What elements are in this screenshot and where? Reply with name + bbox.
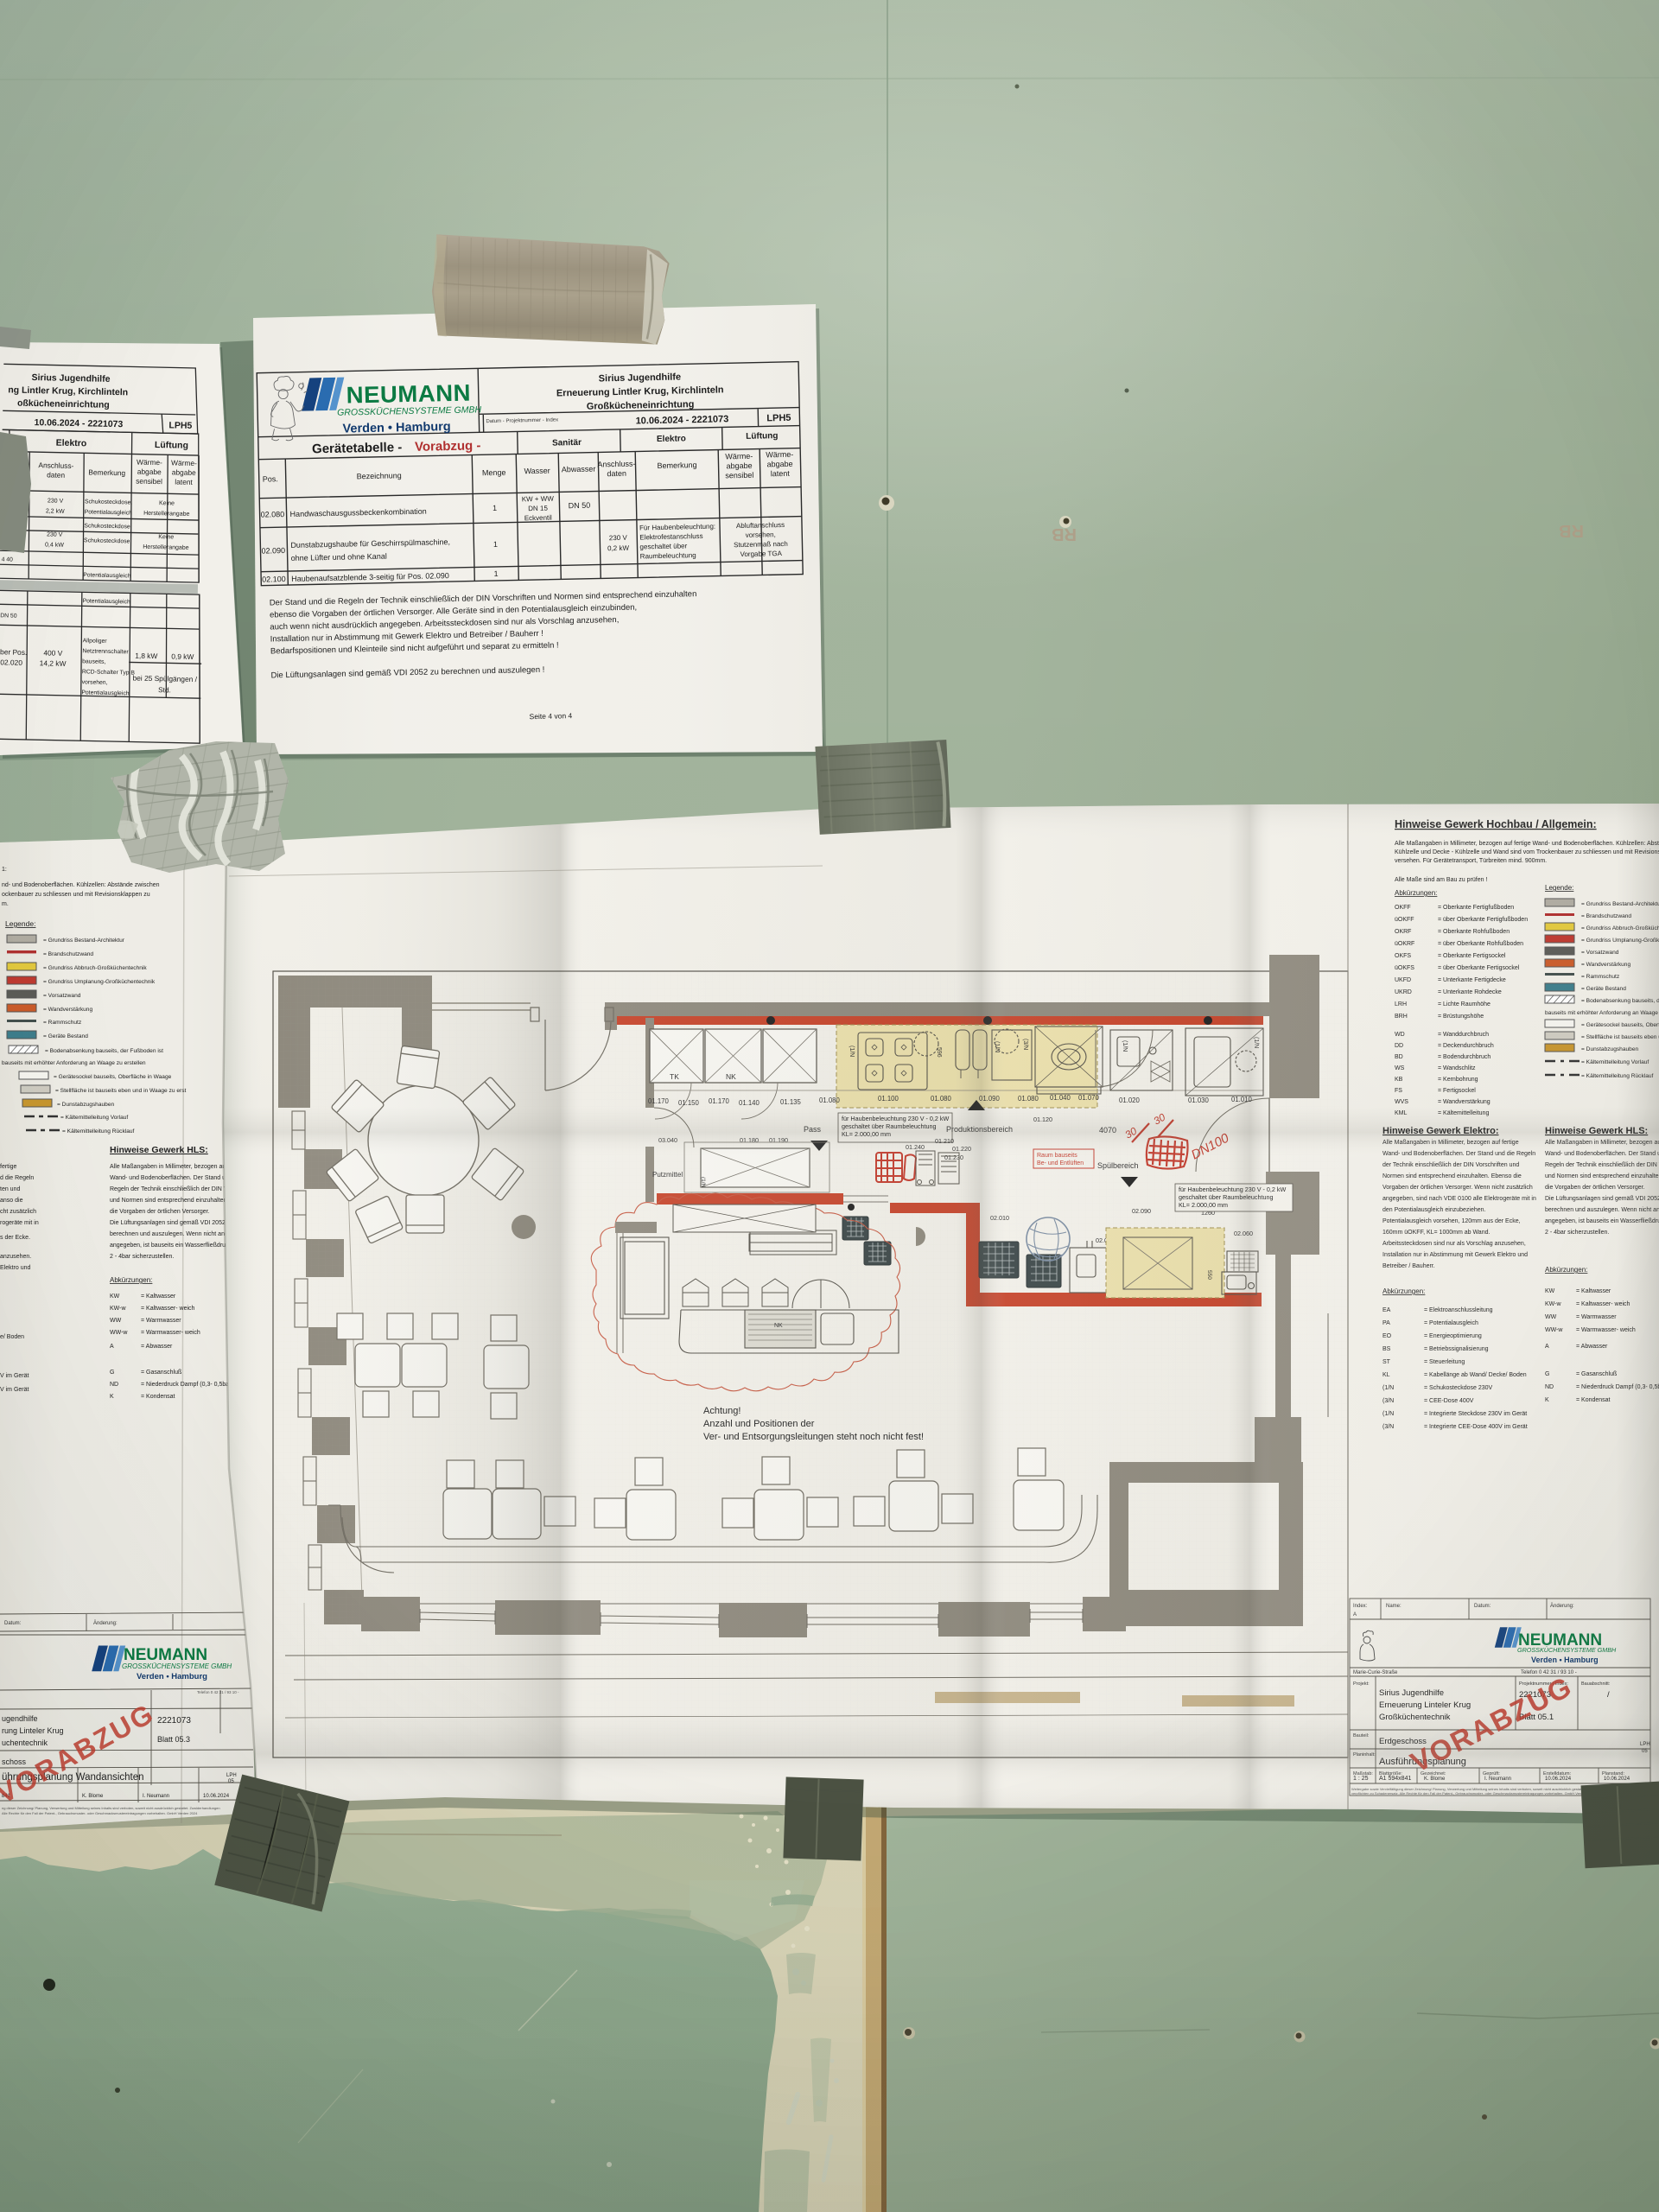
svg-text:über Pos.: über Pos. [0, 647, 27, 657]
svg-text:DN 50: DN 50 [569, 501, 591, 511]
svg-text:oßkücheneinrichtung: oßkücheneinrichtung [17, 398, 110, 410]
svg-text:Alle Rechte für den Fall der P: Alle Rechte für den Fall der Patent-, Ge… [2, 1811, 198, 1815]
svg-text:Vorgabe TGA: Vorgabe TGA [740, 550, 782, 558]
svg-text:02.020: 02.020 [0, 658, 22, 667]
svg-text:abgabe: abgabe [137, 467, 162, 477]
svg-text:1: 1 [493, 504, 497, 512]
svg-text:0,4 kW: 0,4 kW [45, 542, 64, 548]
svg-text:Sirius Jugendhilfe: Sirius Jugendhilfe [599, 372, 682, 384]
svg-text:14,2 kW: 14,2 kW [40, 658, 67, 668]
svg-text:bei 25 Spülgängen /: bei 25 Spülgängen / [132, 674, 197, 684]
svg-text:Elektro: Elektro [657, 434, 686, 444]
svg-text:bauseits,: bauseits, [82, 658, 105, 665]
svg-text:V im Gerät: V im Gerät [0, 1373, 29, 1379]
svg-text:RB: RB [1559, 521, 1584, 540]
svg-text:230 V: 230 V [48, 498, 64, 504]
svg-text:KW: KW [110, 1294, 120, 1300]
svg-text:Lüftung: Lüftung [155, 440, 188, 451]
svg-text:WW: WW [110, 1318, 122, 1324]
svg-text:230 V: 230 V [609, 534, 628, 542]
svg-text:RCD-Schalter Typ B: RCD-Schalter Typ B [82, 669, 136, 676]
svg-text:= Kältemittelleitung Vorlauf: = Kältemittelleitung Vorlauf [60, 1115, 128, 1121]
svg-text:LPH5: LPH5 [168, 420, 192, 431]
svg-text:= Stellfläche ist bauseits ebe: = Stellfläche ist bauseits eben und in W… [55, 1088, 186, 1094]
svg-text:abgabe: abgabe [726, 461, 752, 471]
svg-text:10.06.2024 - 2221073: 10.06.2024 - 2221073 [34, 417, 123, 429]
svg-text:Wärme-: Wärme- [766, 450, 793, 460]
svg-text:ND: ND [110, 1382, 118, 1388]
svg-text:Gerätetabelle -: Gerätetabelle - [312, 440, 403, 456]
svg-text:cht zusätzlich: cht zusätzlich [0, 1209, 36, 1215]
svg-text:Bezeichnung: Bezeichnung [357, 471, 402, 480]
svg-text:rung Linteler Krug: rung Linteler Krug [2, 1726, 64, 1735]
svg-text:Netztrennschalter: Netztrennschalter [82, 648, 129, 655]
svg-text:= Grundriss Umplanung-Großküch: = Grundriss Umplanung-Großküchentechnik [43, 979, 156, 985]
svg-text:bauseits mit erhöhter Anforder: bauseits mit erhöhter Anforderung an Waa… [2, 1060, 146, 1066]
svg-text:anso die: anso die [0, 1198, 23, 1204]
svg-text:V im Gerät: V im Gerät [0, 1387, 29, 1393]
svg-text:rogeräte mit in: rogeräte mit in [0, 1220, 39, 1226]
svg-text:Vorabzug -: Vorabzug - [415, 438, 481, 454]
svg-text:Anschluss-: Anschluss- [597, 460, 635, 469]
svg-text:nd- und Bodenoberflächen. Kühl: nd- und Bodenoberflächen. Kühlzellen: Ab… [2, 882, 160, 888]
svg-text:Bemerkung: Bemerkung [88, 467, 125, 477]
svg-text:Elektro: Elektro [56, 438, 87, 449]
svg-text:02.080: 02.080 [261, 510, 285, 519]
svg-text:Sanitär: Sanitär [552, 438, 582, 448]
svg-text:daten: daten [607, 469, 626, 478]
svg-text:latent: latent [175, 477, 193, 486]
svg-text:Elektrofestanschluss: Elektrofestanschluss [639, 532, 703, 542]
svg-text:Keine: Keine [158, 534, 174, 540]
svg-text:NEUMANN: NEUMANN [346, 379, 471, 409]
svg-text:2221073: 2221073 [157, 1716, 191, 1726]
svg-text:geschaltet über: geschaltet über [639, 542, 687, 550]
svg-text:= Kaltwasser- weich: = Kaltwasser- weich [141, 1306, 195, 1312]
svg-text:Wärme-: Wärme- [725, 452, 753, 461]
svg-text:Für Haubenbeleuchtung:: Für Haubenbeleuchtung: [639, 523, 715, 532]
svg-text:Schukosteckdose: Schukosteckdose [84, 523, 130, 530]
svg-text:= Gerätesockel bauseits, Oberf: = Gerätesockel bauseits, Oberfläche in W… [54, 1074, 172, 1080]
svg-text:Telefon 0 42 31 / 93 10 -: Telefon 0 42 31 / 93 10 - [197, 1690, 239, 1694]
svg-text:10.06.2024: 10.06.2024 [203, 1794, 230, 1799]
svg-text:Eckventil: Eckventil [524, 514, 552, 523]
svg-text:Schukosteckdose,: Schukosteckdose, [85, 499, 132, 505]
svg-text:Menge: Menge [482, 468, 506, 478]
svg-text:Sirius Jugendhilfe: Sirius Jugendhilfe [31, 372, 110, 385]
svg-text:I. Neumann: I. Neumann [143, 1794, 169, 1799]
svg-text:Verden • Hamburg: Verden • Hamburg [137, 1672, 207, 1681]
svg-text:= Niederdruck Dampf (0,3- 0,5b: = Niederdruck Dampf (0,3- 0,5bar) [141, 1382, 233, 1388]
svg-text:= Kondensat: = Kondensat [141, 1394, 175, 1400]
svg-text:02.100: 02.100 [262, 575, 286, 584]
svg-text:= Warmwasser- weich: = Warmwasser- weich [141, 1330, 200, 1336]
svg-text:Datum:: Datum: [4, 1621, 22, 1626]
svg-text:K. Blome: K. Blome [82, 1794, 104, 1799]
svg-text:WW-w: WW-w [110, 1330, 128, 1336]
svg-text:e/ Boden: e/ Boden [0, 1334, 24, 1340]
svg-text:Herstellerangabe: Herstellerangabe [143, 544, 189, 551]
svg-text:= Grundriss Abbruch-Großküchen: = Grundriss Abbruch-Großküchentechnik [43, 965, 147, 971]
svg-text:anzusehen.: anzusehen. [0, 1254, 31, 1260]
svg-text:= Abwasser: = Abwasser [141, 1344, 173, 1350]
svg-text:sensibel: sensibel [136, 477, 162, 486]
svg-text:= Kaltwasser: = Kaltwasser [141, 1294, 176, 1300]
svg-text:die Vorgaben der örtlichen Ver: die Vorgaben der örtlichen Versorger. [110, 1209, 210, 1215]
svg-text:Abkürzungen:: Abkürzungen: [110, 1276, 152, 1284]
svg-text:K: K [110, 1394, 114, 1400]
svg-text:Herstellerangabe: Herstellerangabe [143, 511, 190, 518]
svg-text:= Gasanschluß: = Gasanschluß [141, 1370, 181, 1376]
svg-text:Wärme-: Wärme- [171, 458, 197, 467]
svg-text:Potentialausgleich: Potentialausgleich [83, 572, 131, 579]
svg-text:= Warmwasser: = Warmwasser [141, 1318, 181, 1324]
svg-text:Abluftanschluss: Abluftanschluss [736, 521, 785, 530]
svg-text:ockenbauer zu schliessen und m: ockenbauer zu schliessen und mit Revisio… [2, 892, 150, 898]
svg-text:DN 15: DN 15 [528, 505, 548, 512]
svg-text:1:: 1: [2, 867, 7, 873]
svg-text:Seite 4 von 4: Seite 4 von 4 [529, 711, 572, 721]
svg-text:Stutzenmaß nach: Stutzenmaß nach [734, 540, 788, 549]
svg-text:Hinweise Gewerk HLS:: Hinweise Gewerk HLS: [110, 1145, 208, 1155]
svg-text:abgabe: abgabe [766, 460, 792, 469]
svg-text:4 40: 4 40 [2, 556, 14, 563]
svg-text:uchentechnik: uchentechnik [2, 1738, 48, 1747]
svg-text:Bemerkung: Bemerkung [657, 461, 696, 470]
svg-text:Blatt 05.3: Blatt 05.3 [157, 1735, 190, 1744]
svg-text:ten und: ten und [0, 1186, 20, 1192]
svg-text:Potentialausgleich: Potentialausgleich [81, 690, 130, 696]
svg-text:= Kältemittelleitung Rücklauf: = Kältemittelleitung Rücklauf [62, 1128, 135, 1135]
svg-text:Abwasser: Abwasser [562, 465, 596, 474]
svg-text:Die Lüftungsanlagen sind gemäß: Die Lüftungsanlagen sind gemäß VDI 2052 … [110, 1220, 233, 1226]
svg-text:berechnen und auszulegen. Wenn: berechnen und auszulegen. Wenn nicht and… [110, 1231, 237, 1237]
svg-text:Änderung:: Änderung: [93, 1620, 118, 1626]
svg-text:230 V: 230 V [47, 531, 63, 537]
svg-text:Wasser: Wasser [524, 467, 550, 476]
svg-text:10.06.2024 - 2221073: 10.06.2024 - 2221073 [636, 414, 729, 426]
svg-text:= Wandverstärkung: = Wandverstärkung [43, 1007, 92, 1013]
svg-text:abgabe: abgabe [172, 467, 196, 477]
svg-text:Verden • Hamburg: Verden • Hamburg [342, 420, 450, 436]
svg-text:Lüftung: Lüftung [746, 431, 778, 442]
svg-text:DN 50: DN 50 [0, 613, 17, 619]
svg-text:Keine: Keine [159, 500, 175, 506]
svg-text:Pos.: Pos. [263, 474, 278, 483]
svg-text:angegeben, ist bauseits ein Wa: angegeben, ist bauseits ein Wasserfließd… [110, 1243, 243, 1249]
svg-text:Elektro und: Elektro und [0, 1265, 31, 1271]
svg-text:Legende:: Legende: [5, 919, 35, 928]
svg-text:Std.: Std. [158, 685, 171, 694]
svg-text:daten: daten [47, 470, 66, 479]
svg-text:1: 1 [493, 540, 498, 549]
svg-text:sensibel: sensibel [725, 471, 753, 480]
svg-text:Anschluss-: Anschluss- [38, 461, 73, 470]
svg-text:= Brandschutzwand: = Brandschutzwand [43, 951, 93, 957]
svg-text:NEUMANN: NEUMANN [124, 1646, 207, 1664]
svg-text:latent: latent [771, 469, 791, 478]
svg-text:2,2 kW: 2,2 kW [46, 508, 65, 514]
svg-text:= Grundriss Bestand-Architektu: = Grundriss Bestand-Architektur [43, 938, 125, 944]
svg-text:2 - 4bar sicherzustellen.: 2 - 4bar sicherzustellen. [110, 1254, 174, 1260]
svg-text:1: 1 [494, 569, 499, 578]
svg-text:s der Ecke.: s der Ecke. [0, 1235, 30, 1241]
svg-text:= Vorsatzwand: = Vorsatzwand [43, 993, 81, 999]
svg-text:ugendhilfe: ugendhilfe [2, 1714, 38, 1723]
svg-text:Potentialausgleich: Potentialausgleich [85, 509, 133, 516]
svg-text:= Rammschutz: = Rammschutz [43, 1020, 81, 1026]
svg-text:0,2 kW: 0,2 kW [607, 544, 630, 553]
svg-text:Wand- und Bodenoberflächen. De: Wand- und Bodenoberflächen. Der Stand un… [110, 1175, 242, 1181]
svg-text:400 V: 400 V [43, 648, 63, 657]
svg-text:m.: m. [2, 901, 9, 907]
svg-text:Raumbeleuchtung: Raumbeleuchtung [640, 551, 696, 560]
svg-text:= Bodenabsenkung bauseits, der: = Bodenabsenkung bauseits, der Fußboden … [45, 1048, 163, 1054]
svg-text:vorsehen,: vorsehen, [82, 679, 108, 686]
svg-text:02.090: 02.090 [261, 546, 285, 556]
svg-text:1,8 kW: 1,8 kW [135, 652, 157, 661]
svg-text:fertige: fertige [0, 1164, 17, 1170]
svg-text:GROSSKÜCHENSYSTEME GMBH: GROSSKÜCHENSYSTEME GMBH [122, 1662, 232, 1670]
svg-text:Wärme-: Wärme- [137, 458, 162, 467]
svg-text:d die Regeln: d die Regeln [0, 1175, 34, 1181]
svg-text:RB: RB [1052, 524, 1077, 543]
svg-text:G: G [110, 1370, 114, 1376]
svg-text:Allpoliger: Allpoliger [83, 638, 108, 645]
svg-text:LPH: LPH [226, 1773, 237, 1778]
svg-text:05: 05 [228, 1779, 234, 1784]
svg-text:vorsehen,: vorsehen, [746, 531, 776, 539]
svg-text:KW + WW: KW + WW [522, 495, 555, 504]
svg-text:= Dunstabzugshauben: = Dunstabzugshauben [57, 1102, 115, 1108]
svg-text:ng dieser Zeichnung/ Planung,: ng dieser Zeichnung/ Planung, Verwertung… [2, 1806, 220, 1810]
svg-text:Schukosteckdose: Schukosteckdose [84, 537, 130, 544]
svg-text:Potentialausgleich: Potentialausgleich [83, 598, 131, 605]
svg-text:A: A [110, 1344, 114, 1350]
svg-text:0,9 kW: 0,9 kW [171, 652, 194, 661]
svg-text:LPH5: LPH5 [766, 413, 791, 424]
svg-text:KW-w: KW-w [110, 1306, 126, 1312]
svg-text:= Geräte Bestand: = Geräte Bestand [43, 1033, 88, 1039]
